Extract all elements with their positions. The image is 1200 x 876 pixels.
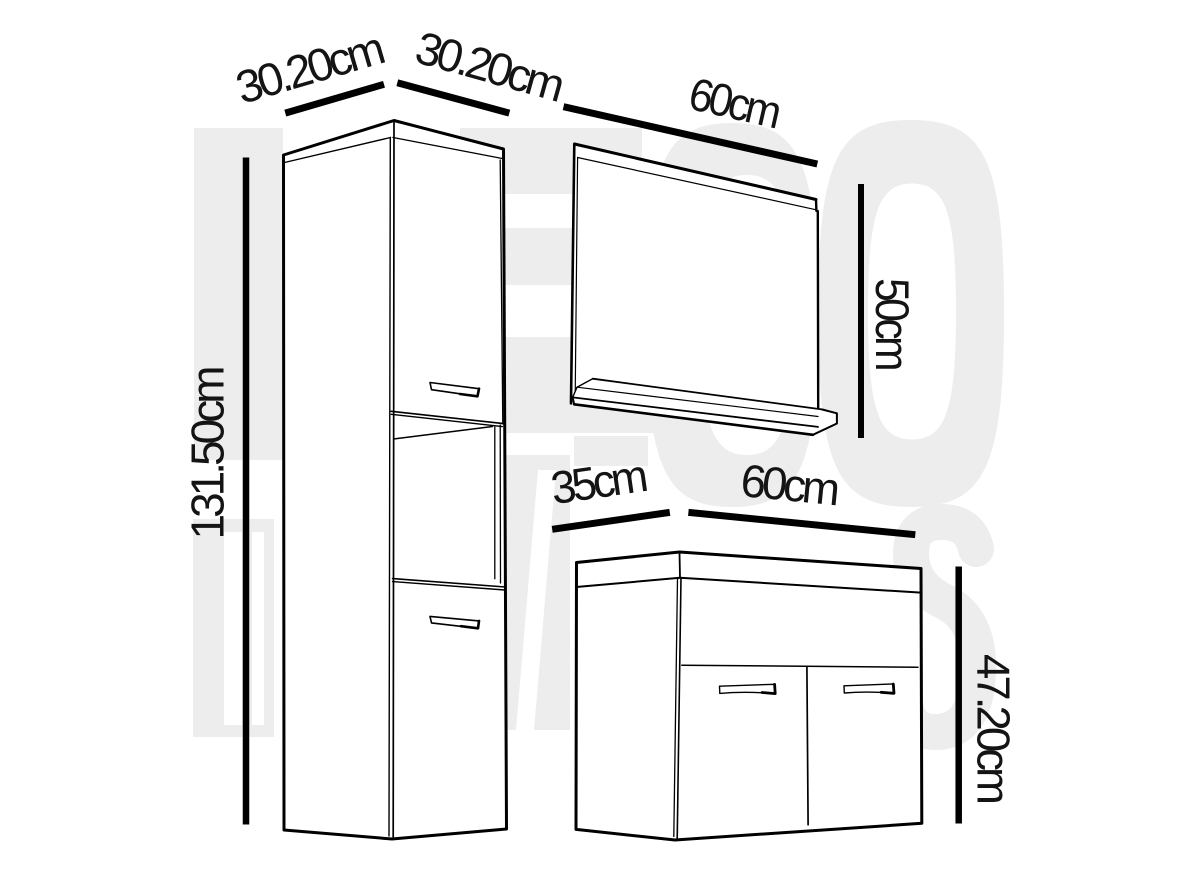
svg-text:60cm: 60cm xyxy=(738,455,840,516)
svg-text:47.20cm: 47.20cm xyxy=(967,654,1018,803)
svg-text:131.50cm: 131.50cm xyxy=(182,368,234,540)
svg-text:50cm: 50cm xyxy=(866,278,920,369)
svg-text:30.20cm: 30.20cm xyxy=(230,22,389,114)
svg-text:30.20cm: 30.20cm xyxy=(410,21,569,111)
